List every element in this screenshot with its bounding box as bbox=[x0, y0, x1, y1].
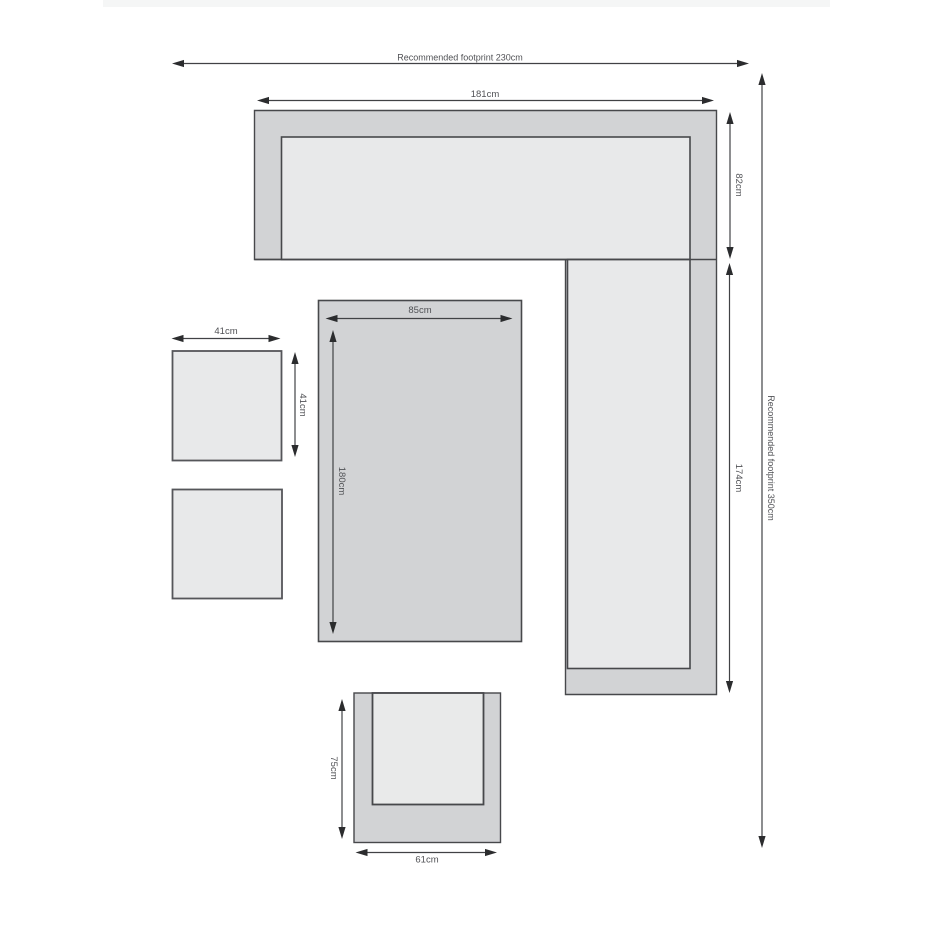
svg-text:Recommended footprint 230cm: Recommended footprint 230cm bbox=[397, 53, 523, 63]
svg-text:41cm: 41cm bbox=[297, 393, 308, 416]
svg-text:41cm: 41cm bbox=[214, 326, 237, 337]
svg-text:181cm: 181cm bbox=[471, 89, 500, 100]
svg-text:174cm: 174cm bbox=[733, 464, 744, 493]
svg-text:82cm: 82cm bbox=[733, 173, 744, 196]
svg-text:75cm: 75cm bbox=[328, 756, 339, 779]
svg-text:85cm: 85cm bbox=[408, 305, 431, 316]
svg-text:Recommended footprint 350cm: Recommended footprint 350cm bbox=[766, 395, 776, 521]
svg-text:180cm: 180cm bbox=[336, 467, 347, 496]
svg-text:61cm: 61cm bbox=[415, 855, 438, 866]
